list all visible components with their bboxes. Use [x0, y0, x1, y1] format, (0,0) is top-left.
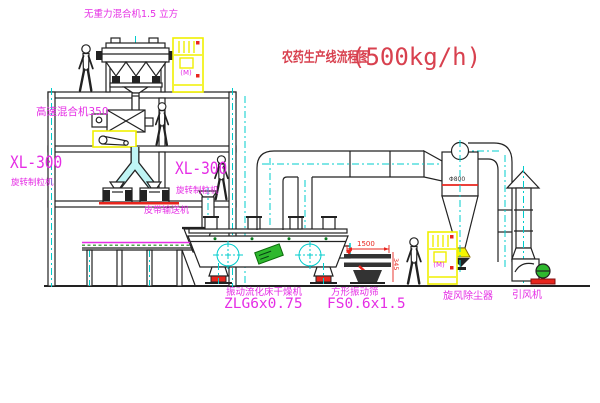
induced-draft-fan — [512, 259, 555, 284]
person-ground — [407, 238, 421, 284]
cabinet-top-marking: (M) — [178, 70, 194, 77]
control-cabinet-top — [173, 38, 203, 92]
label-belt-conveyor: 皮带输送机 — [144, 207, 189, 216]
dryer-exhaust-duct — [257, 151, 442, 230]
fluid-bed-dryer — [188, 217, 350, 284]
cabinet-right-marking: (M) — [431, 262, 447, 269]
y-duct — [117, 147, 153, 187]
cyclone-diameter-text: Φ800 — [449, 177, 465, 183]
label-dryer-model: ZLG6x0.75 — [224, 297, 303, 312]
mill-base-strip — [99, 202, 179, 205]
vibrating-sieve — [344, 243, 393, 283]
label-gravity-mixer: 无重力混合机1.5 立方 — [84, 10, 178, 20]
label-sieve-model: FS0.6x1.5 — [327, 297, 406, 312]
granulator-left — [103, 182, 132, 202]
label-fan: 引风机 — [512, 291, 542, 301]
label-mill-left-name: 旋转制粒机 — [11, 179, 54, 188]
label-mill-left-model: XL-300 — [10, 155, 62, 172]
page-title-capacity: (500kg/h) — [351, 45, 481, 69]
high-speed-mixer — [92, 96, 153, 147]
belt-conveyor — [82, 243, 195, 287]
label-mill-right-name: 旋转制粒机 — [176, 187, 219, 196]
control-cabinet-right — [428, 232, 457, 284]
person-top-floor — [79, 45, 93, 91]
sieve-length-dim: 1500 — [357, 241, 375, 248]
label-high-speed-mixer: 高速混合机350 — [36, 107, 109, 118]
cad-flow-diagram: 农药生产线流程图 (500kg/h) 无重力混合机1.5 立方 高速混合机350… — [0, 0, 600, 403]
label-mill-right-model: XL-300 — [175, 161, 227, 178]
sieve-height-dim: 345 — [393, 258, 400, 270]
label-cyclone: 旋风除尘器 — [443, 292, 493, 302]
